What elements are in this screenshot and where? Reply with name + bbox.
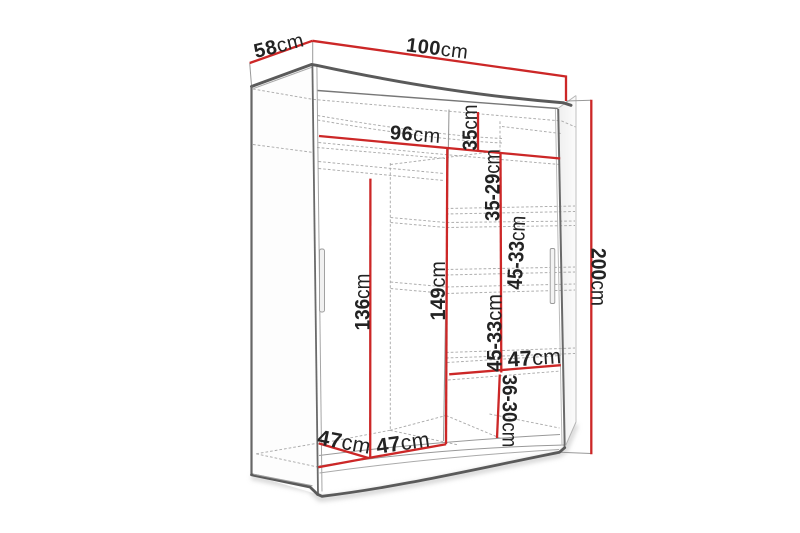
svg-text:36-30cm: 36-30cm: [497, 375, 520, 448]
svg-text:35-29cm: 35-29cm: [481, 149, 505, 221]
svg-text:35cm: 35cm: [459, 105, 482, 151]
svg-text:96cm: 96cm: [389, 122, 441, 148]
svg-text:47cm: 47cm: [507, 344, 562, 372]
svg-text:149cm: 149cm: [426, 261, 450, 320]
svg-text:200cm: 200cm: [586, 248, 610, 306]
svg-text:45-33cm: 45-33cm: [483, 294, 507, 372]
svg-text:45-33cm: 45-33cm: [504, 215, 531, 290]
svg-text:136cm: 136cm: [351, 274, 374, 331]
